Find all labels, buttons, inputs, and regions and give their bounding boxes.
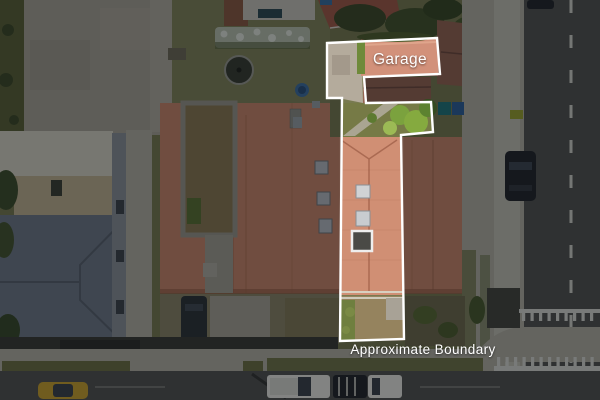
lot-skylight <box>356 211 370 226</box>
dim-overlay <box>0 0 600 400</box>
weed-clump <box>345 307 355 317</box>
boundary-label: Approximate Boundary <box>350 342 495 357</box>
garage-label: Garage <box>373 51 427 68</box>
backyard-weeds <box>341 300 355 340</box>
aerial-photo: Garage Approximate Boundary <box>0 0 600 400</box>
lot-shrub <box>367 113 377 123</box>
lot-roof-strip <box>339 137 404 295</box>
driveway-stain <box>332 55 350 75</box>
lot-skylight-large <box>352 231 372 251</box>
lot-skylight <box>356 185 370 198</box>
lot-tree <box>383 121 397 135</box>
backyard-concrete <box>386 298 403 320</box>
garage-side-bush <box>357 41 365 74</box>
weed-clump <box>342 326 350 334</box>
aerial-photo-canvas: Garage Approximate Boundary <box>0 0 600 400</box>
